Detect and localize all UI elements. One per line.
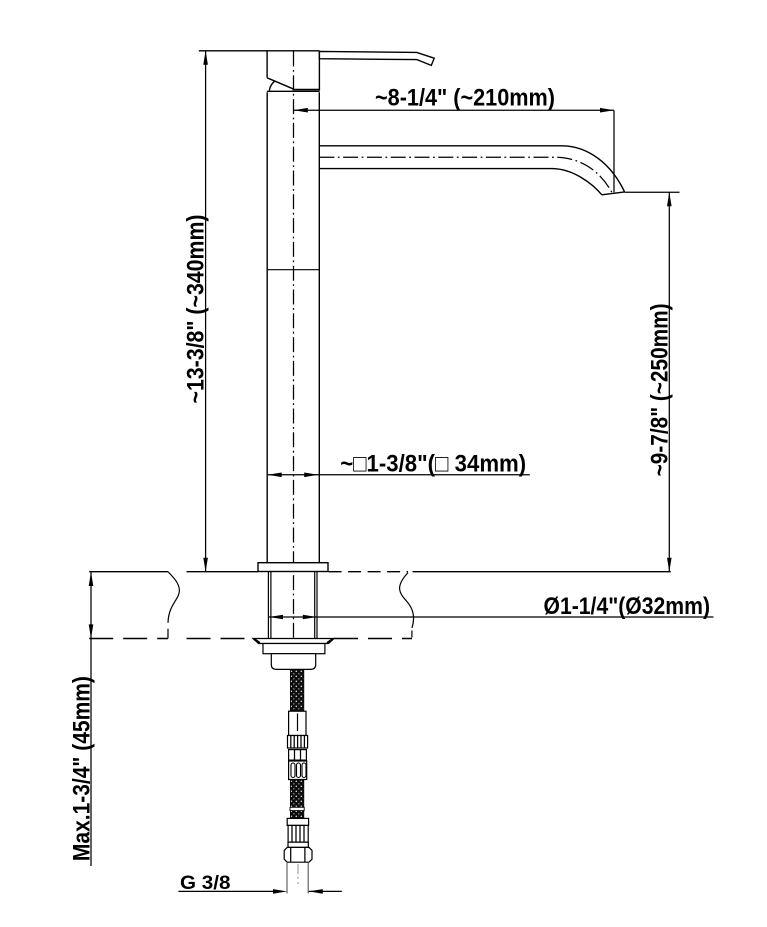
- svg-text:G 3/8: G 3/8: [180, 872, 231, 894]
- svg-text:~13-3/8" (~340mm): ~13-3/8" (~340mm): [183, 215, 210, 404]
- svg-text:Ø1-1/4"(Ø32mm): Ø1-1/4"(Ø32mm): [544, 593, 711, 620]
- svg-text:~9-7/8" (~250mm): ~9-7/8" (~250mm): [647, 303, 674, 476]
- svg-text:~8-1/4" (~210mm): ~8-1/4" (~210mm): [375, 84, 555, 111]
- svg-text:~□1-3/8"(□ 34mm): ~□1-3/8"(□ 34mm): [340, 450, 526, 477]
- svg-text:Max.1-3/4" (45mm): Max.1-3/4" (45mm): [69, 676, 96, 861]
